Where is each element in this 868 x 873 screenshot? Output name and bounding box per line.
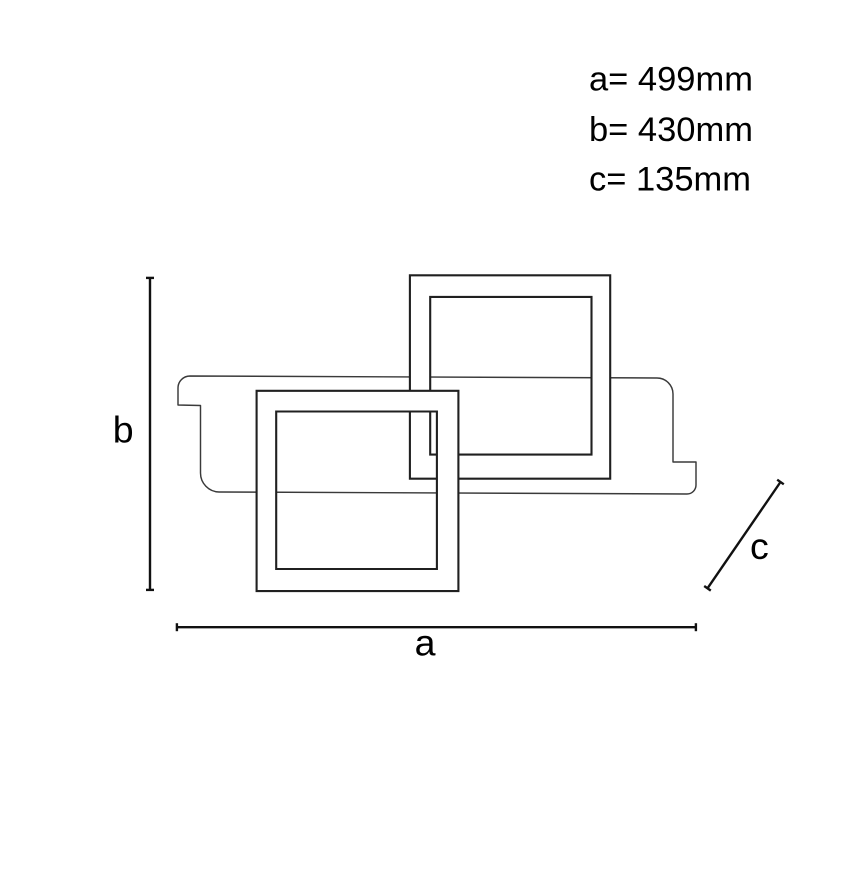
svg-text:a: a xyxy=(415,622,436,664)
svg-text:a= 499mm: a= 499mm xyxy=(589,60,753,98)
svg-text:b: b xyxy=(113,408,134,450)
svg-text:c= 135mm: c= 135mm xyxy=(589,161,751,199)
svg-text:b= 430mm: b= 430mm xyxy=(589,111,753,149)
svg-text:c: c xyxy=(750,525,769,567)
